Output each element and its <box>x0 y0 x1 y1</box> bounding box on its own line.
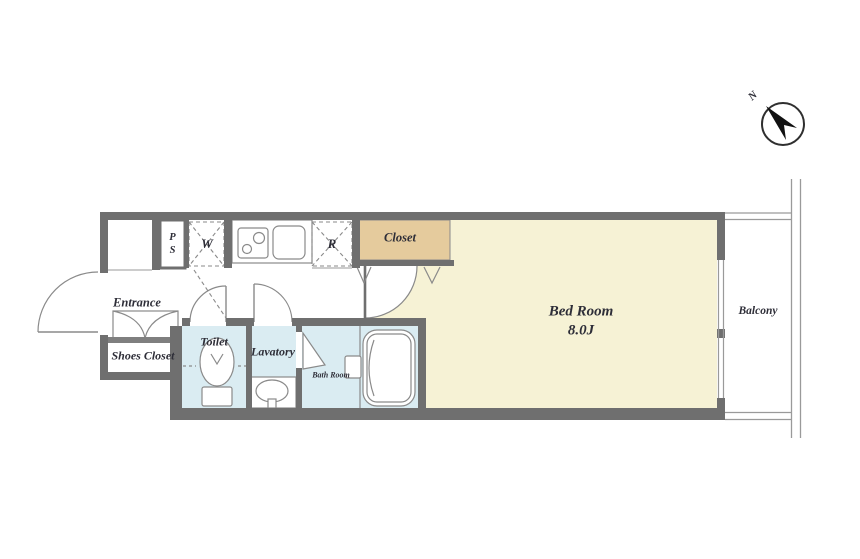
bath-room-label: Bath Room <box>312 371 350 380</box>
toilet-tank <box>202 387 232 406</box>
washing-machine-label: W <box>201 236 213 252</box>
toilet-label: Toilet <box>200 335 228 350</box>
entrance-step-line <box>194 270 226 318</box>
north-compass <box>762 103 804 145</box>
entrance-label: Entrance <box>113 296 161 311</box>
lavatory-fixture <box>251 377 296 408</box>
faucet <box>268 399 276 408</box>
lavatory-door-swing <box>254 284 292 322</box>
refrigerator-label: R <box>328 236 337 252</box>
floor-plan: Entrance Shoes Closet Toilet Lavatory Ba… <box>0 0 860 559</box>
bathtub-outer <box>363 330 415 406</box>
floor-plan-drawing <box>0 0 860 559</box>
front-door-swing <box>38 272 98 332</box>
bedroom-label: Bed Room 8.0J <box>549 302 614 340</box>
kitchen-sink <box>273 226 305 259</box>
toilet-door-swing <box>190 286 226 322</box>
bedroom-size: 8.0J <box>549 321 614 340</box>
shoes-closet-label: Shoes Closet <box>111 349 174 364</box>
closet-label: Closet <box>384 231 416 246</box>
balcony-label: Balcony <box>739 305 778 317</box>
stove <box>238 228 268 258</box>
bedroom-name: Bed Room <box>549 302 614 321</box>
kitchen <box>232 220 312 263</box>
lavatory-label: Lavatory <box>251 345 295 360</box>
shoe-cabinet <box>113 311 178 338</box>
pipe-shaft-label: P S <box>160 221 185 267</box>
